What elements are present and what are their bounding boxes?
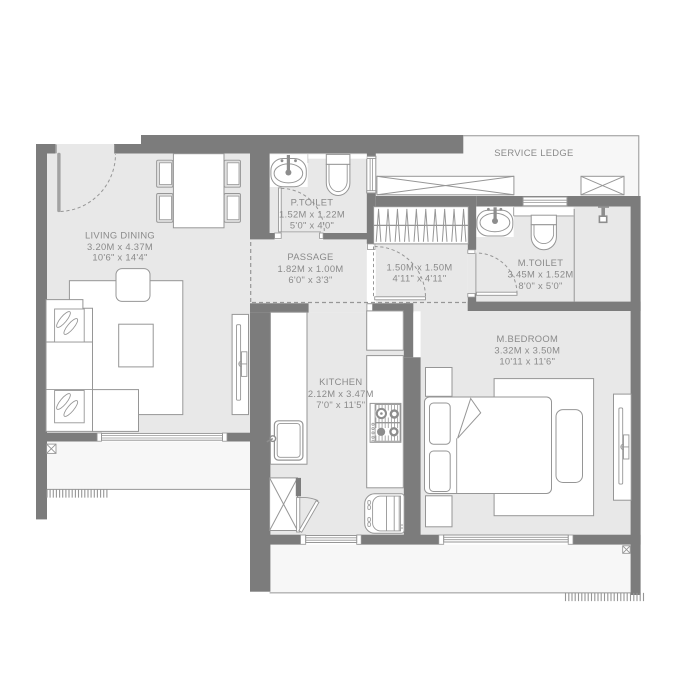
svg-text:8'0" x 5'0": 8'0" x 5'0" [518,280,562,291]
svg-text:PASSAGE: PASSAGE [287,251,333,262]
svg-text:6'0" x 3'3": 6'0" x 3'3" [288,274,332,285]
svg-text:KITCHEN: KITCHEN [319,376,362,387]
svg-text:3.20M x 4.37M: 3.20M x 4.37M [87,241,153,252]
svg-text:5'0" x 4'0": 5'0" x 4'0" [290,220,334,231]
svg-text:10'11 x 11'6": 10'11 x 11'6" [499,356,555,367]
svg-text:10'6" x 14'4": 10'6" x 14'4" [92,252,147,263]
svg-text:M.TOILET: M.TOILET [518,257,563,268]
svg-text:P.TOILET: P.TOILET [291,197,334,208]
svg-text:1.52M x 1.22M: 1.52M x 1.22M [279,208,345,219]
svg-text:1.82M x 1.00M: 1.82M x 1.00M [278,263,344,274]
svg-text:M.BEDROOM: M.BEDROOM [497,333,559,344]
svg-text:7'0" x 11'5": 7'0" x 11'5" [316,399,365,410]
svg-text:3.45M x 1.52M: 3.45M x 1.52M [508,269,574,280]
svg-text:1.50M x 1.50M: 1.50M x 1.50M [387,261,453,272]
svg-text:SERVICE LEDGE: SERVICE LEDGE [494,147,573,158]
svg-text:2.12M x 3.47M: 2.12M x 3.47M [308,388,374,399]
svg-text:4'11" x 4'11": 4'11" x 4'11" [393,273,447,284]
svg-text:3.32M x 3.50M: 3.32M x 3.50M [494,344,560,355]
svg-text:LIVING DINING: LIVING DINING [85,230,155,241]
